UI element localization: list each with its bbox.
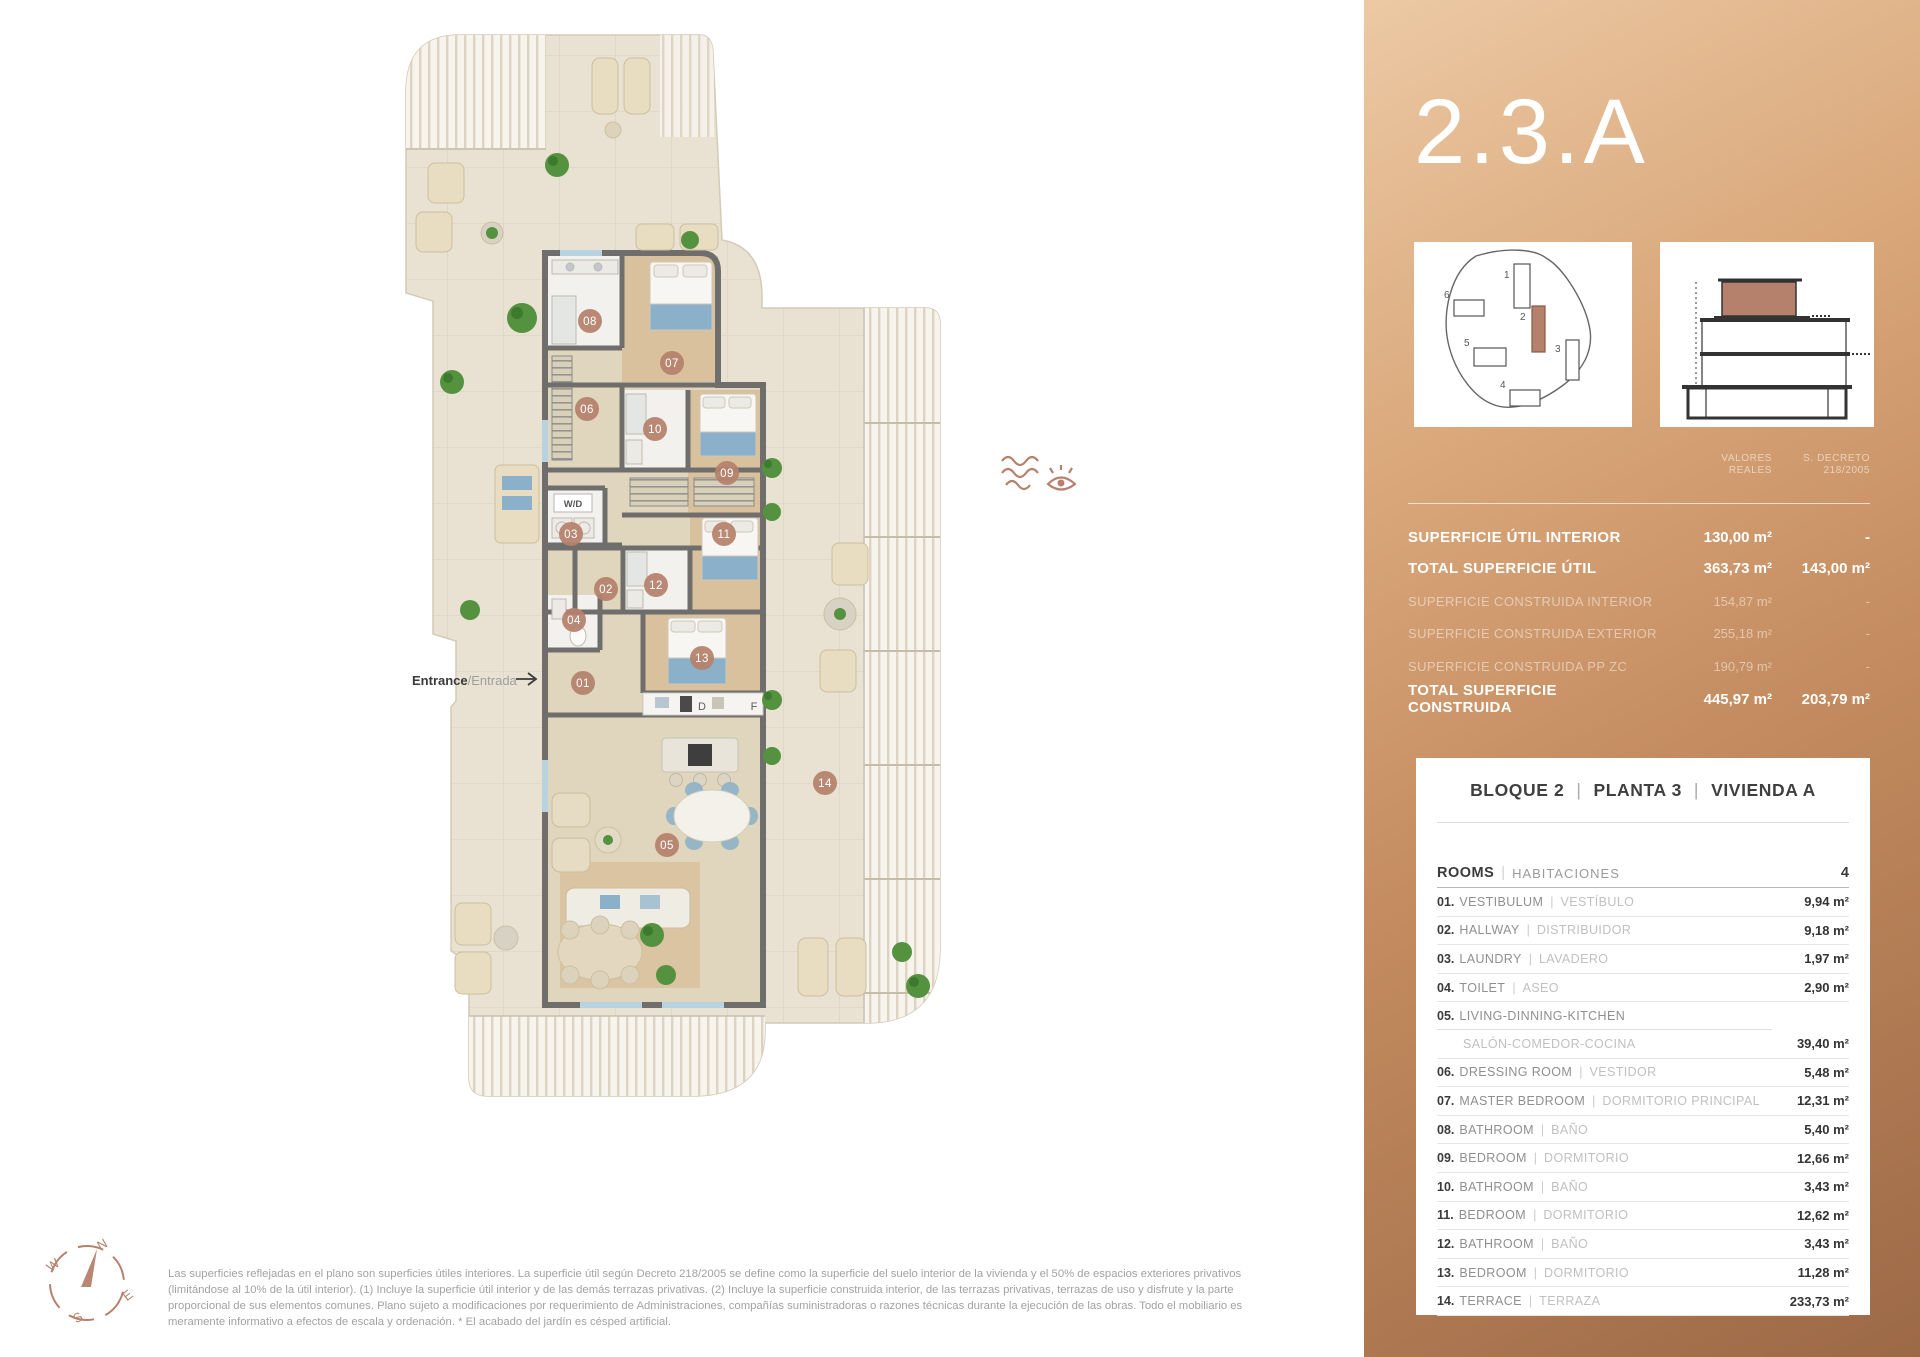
brochure-page: W/D D F: [0, 0, 1920, 1357]
svg-text:13: 13: [695, 653, 709, 665]
room-row: 09.BEDROOM|DORMITORIO12,66 m²: [1437, 1144, 1849, 1173]
unit-card: BLOQUE 2 | PLANTA 3 | VIVIENDA A ROOMS |…: [1416, 758, 1870, 1315]
svg-text:05: 05: [660, 840, 674, 852]
surface-row: SUPERFICIE CONSTRUIDA EXTERIOR255,18 m²-: [1408, 618, 1870, 648]
room-marker-04: 04: [562, 608, 586, 632]
site-plan-diagram: 1 2 3 4 5 6: [1414, 242, 1632, 427]
unit-card-heading: BLOQUE 2 | PLANTA 3 | VIVIENDA A: [1437, 758, 1849, 823]
surface-row: TOTAL SUPERFICIE ÚTIL363,73 m²143,00 m²: [1408, 553, 1870, 583]
building-section-diagram: [1660, 242, 1874, 427]
svg-text:07: 07: [665, 358, 679, 370]
room-marker-07: 07: [660, 351, 684, 375]
kitchen-island-icon: [662, 738, 738, 787]
svg-text:F: F: [751, 701, 758, 713]
room-marker-10: 10: [643, 417, 667, 441]
svg-text:1: 1: [1504, 270, 1510, 281]
compass: N W E S: [40, 1235, 136, 1330]
vivienda-label: VIVIENDA A: [1711, 780, 1816, 801]
svg-text:09: 09: [720, 468, 734, 480]
svg-text:01: 01: [576, 678, 590, 690]
svg-text:W/D: W/D: [564, 499, 583, 510]
surface-row: SUPERFICIE ÚTIL INTERIOR130,00 m²-: [1408, 522, 1870, 552]
disclaimer-line: meramente informativo a efectos de escal…: [168, 1314, 1348, 1330]
svg-text:E: E: [119, 1286, 135, 1303]
room-row: 04.TOILET|ASEO2,90 m²: [1437, 974, 1849, 1003]
room-marker-09: 09: [715, 461, 739, 485]
bloque-label: BLOQUE 2: [1470, 780, 1564, 801]
planta-label: PLANTA 3: [1593, 780, 1681, 801]
room-row: 08.BATHROOM|BAÑO5,40 m²: [1437, 1116, 1849, 1145]
rooms-list: 01.VESTIBULUM|VESTÍBULO9,94 m² 02.HALLWA…: [1437, 887, 1849, 1316]
compass-needle-icon: [81, 1249, 97, 1287]
svg-text:10: 10: [648, 424, 662, 436]
svg-text:S: S: [70, 1309, 85, 1326]
room-marker-05: 05: [655, 833, 679, 857]
room-row: 10.BATHROOM|BAÑO3,43 m²: [1437, 1173, 1849, 1202]
svg-text:08: 08: [583, 316, 597, 328]
floor-plan: W/D D F: [0, 0, 1364, 1357]
room-row: 11.BEDROOM|DORMITORIO12,62 m²: [1437, 1202, 1849, 1231]
disclaimer-line: (limitándose al 10% de la útil interior)…: [168, 1282, 1348, 1298]
room-marker-11: 11: [712, 522, 736, 546]
sea-view-icon: [1002, 457, 1075, 490]
room-row: 02.HALLWAY|DISTRIBUIDOR9,18 m²: [1437, 917, 1849, 946]
room-row: 01.VESTIBULUM|VESTÍBULO9,94 m²: [1437, 888, 1849, 917]
surface-row: TOTAL SUPERFICIE CONSTRUIDA445,97 m²203,…: [1408, 684, 1870, 714]
rooms-header: ROOMS | HABITACIONES 4: [1437, 859, 1849, 887]
disclaimer: Las superficies reflejadas en el plano s…: [168, 1266, 1348, 1330]
room-row: 07.MASTER BEDROOM|DORMITORIO PRINCIPAL12…: [1437, 1087, 1849, 1116]
svg-text:11: 11: [718, 529, 731, 541]
surface-table-header: VALORES REALES S. DECRETO 218/2005: [1408, 453, 1870, 477]
svg-text:6: 6: [1444, 290, 1450, 301]
room-row: 05.LIVING-DINNING-KITCHEN: [1437, 1002, 1849, 1030]
svg-text:03: 03: [564, 529, 578, 541]
room-row: SALÓN-COMEDOR-COCINA39,40 m²: [1437, 1030, 1849, 1059]
room-marker-02: 02: [594, 577, 618, 601]
room-marker-08: 08: [578, 309, 602, 333]
svg-text:02: 02: [599, 584, 613, 596]
svg-text:3: 3: [1555, 344, 1561, 355]
room-row: 14.TERRACE|TERRAZA233,73 m²: [1437, 1287, 1849, 1316]
unit-title: 2.3.A: [1414, 86, 1649, 178]
sidebar: 2.3.A 1 2 3 4 5 6: [1364, 0, 1920, 1357]
room-row: 06.DRESSING ROOM|VESTIDOR5,48 m²: [1437, 1059, 1849, 1088]
rooms-count: 4: [1841, 865, 1849, 881]
svg-text:12: 12: [649, 580, 663, 592]
svg-text:D: D: [698, 701, 706, 713]
surface-row: SUPERFICIE CONSTRUIDA PP ZC190,79 m²-: [1408, 651, 1870, 681]
surface-row: SUPERFICIE CONSTRUIDA INTERIOR154,87 m²-: [1408, 586, 1870, 616]
kitchen-counter-icon: D F: [643, 693, 763, 715]
wd-label: W/D: [554, 494, 592, 512]
svg-text:2: 2: [1520, 312, 1526, 323]
disclaimer-line: Las superficies reflejadas en el plano s…: [168, 1266, 1348, 1282]
room-marker-14: 14: [813, 771, 837, 795]
svg-text:14: 14: [818, 778, 832, 790]
col-header-valores: VALORES REALES: [1662, 453, 1772, 477]
room-row: 12.BATHROOM|BAÑO3,43 m²: [1437, 1230, 1849, 1259]
svg-text:04: 04: [567, 615, 581, 627]
room-marker-12: 12: [644, 573, 668, 597]
col-header-decreto: S. DECRETO 218/2005: [1772, 453, 1870, 477]
room-row: 03.LAUNDRY|LAVADERO1,97 m²: [1437, 945, 1849, 974]
room-marker-01: 01: [571, 671, 595, 695]
svg-text:Entrance/Entrada: Entrance/Entrada: [412, 673, 518, 688]
room-marker-03: 03: [559, 522, 583, 546]
disclaimer-line: proporcional de sus elementos comunes. P…: [168, 1298, 1348, 1314]
svg-text:4: 4: [1500, 380, 1506, 391]
divider: [1408, 503, 1870, 504]
svg-text:06: 06: [580, 404, 594, 416]
room-marker-06: 06: [575, 397, 599, 421]
svg-text:5: 5: [1464, 338, 1470, 349]
room-row: 13.BEDROOM|DORMITORIO11,28 m²: [1437, 1259, 1849, 1288]
room-marker-13: 13: [690, 646, 714, 670]
